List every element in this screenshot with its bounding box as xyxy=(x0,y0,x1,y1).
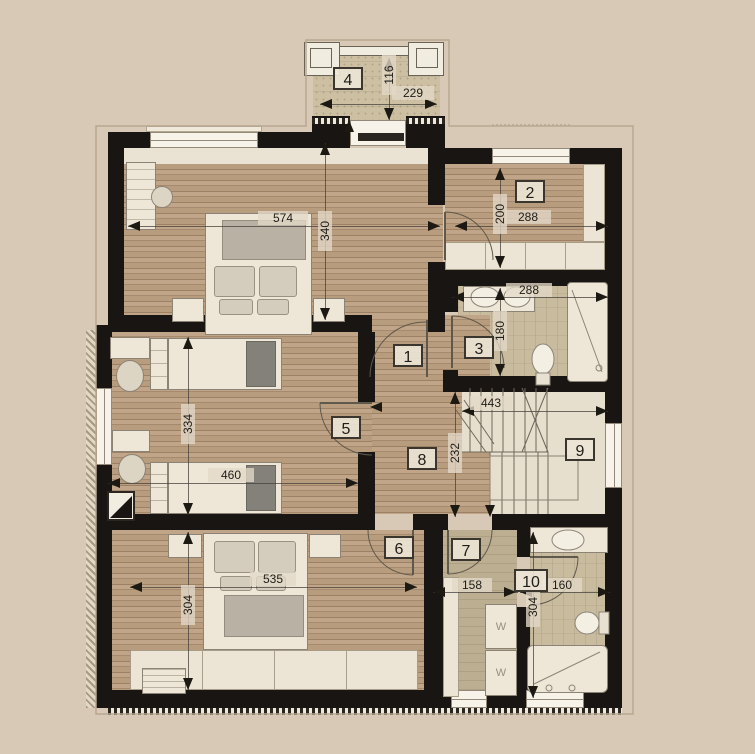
dim-200-arrow-bottom xyxy=(495,256,505,268)
dim-340-arrow-bottom xyxy=(320,308,330,320)
room2-vent-dots xyxy=(492,124,570,126)
bench-bedroom6 xyxy=(142,668,186,694)
dim-334-arrow-top xyxy=(183,337,193,349)
shelf-single-a xyxy=(150,338,168,390)
balcony-hatch-right xyxy=(406,118,445,124)
wall-left-upper xyxy=(108,140,124,332)
stair-direction-arrow xyxy=(485,505,495,517)
left-window xyxy=(96,388,112,465)
shelf-single-b xyxy=(150,462,168,514)
room2-wardrobe-band xyxy=(445,242,605,270)
dim-room2-width: 288 xyxy=(505,210,551,224)
dim-288b-line xyxy=(452,297,608,298)
room-label-9: 9 xyxy=(565,438,595,461)
bed-bottom-pillow-2 xyxy=(258,541,296,573)
dim-304R-arrow-top xyxy=(528,532,538,544)
bed-top-cushion-1 xyxy=(219,299,253,315)
bed-top-cushion-2 xyxy=(257,299,289,315)
dim-443-line xyxy=(462,411,608,412)
stairwell-floor-lower xyxy=(490,452,605,514)
washer-2-label: W xyxy=(496,667,506,679)
dim-460-arrow-right xyxy=(346,478,358,488)
dim-340-arrow-top xyxy=(320,143,330,155)
dim-160-arrow-right xyxy=(598,587,610,597)
room-label-5: 5 xyxy=(331,416,361,439)
dim-535-line xyxy=(130,587,417,588)
bedroom1-window xyxy=(150,132,258,148)
nightstand-top-left xyxy=(172,298,204,322)
dim-158-arrow-left xyxy=(433,587,445,597)
room2-window xyxy=(492,148,570,164)
dim-room5-depth: 334 xyxy=(181,404,195,444)
dim-304L-arrow-bottom xyxy=(183,678,193,690)
dim-288b-arrow-left xyxy=(452,292,464,302)
bedroom1-window-sill xyxy=(146,126,262,132)
dim-bedroom6-depth: 304 xyxy=(181,585,195,625)
washer-unit-1: W xyxy=(485,604,517,649)
dim-460-arrow-left xyxy=(108,478,120,488)
dim-bedroom1-depth: 340 xyxy=(318,211,332,251)
balcony-door-marker-arrow xyxy=(344,120,354,132)
room-label-2: 2 xyxy=(515,180,545,203)
dim-stairhall-width: 443 xyxy=(470,396,512,410)
bed-top-pillow-1 xyxy=(214,266,255,297)
dim-443-arrow-right xyxy=(596,406,608,416)
chair-room5-a xyxy=(116,360,144,392)
dim-460-line xyxy=(108,483,358,484)
dim-bath3-depth: 180 xyxy=(493,311,507,351)
room-label-10: 10 xyxy=(514,569,548,592)
bed-single-a-blanket xyxy=(246,341,276,387)
dim-288a-arrow-left xyxy=(455,221,467,231)
wall-mid-band-1 xyxy=(96,514,368,530)
nightstand-bottom-right xyxy=(309,534,341,558)
dim-room5-width: 460 xyxy=(208,468,254,482)
wall-left-lower xyxy=(96,465,112,708)
dim-room7-width: 158 xyxy=(452,578,492,592)
dim-304R-arrow-bottom xyxy=(528,686,538,698)
bath10-vanity xyxy=(530,527,608,553)
washer-unit-2: W xyxy=(485,650,517,696)
dim-229-arrow-left xyxy=(320,99,332,109)
chair-bedroom1 xyxy=(151,186,173,208)
wall-room5-right-a xyxy=(358,332,375,402)
dim-229-line xyxy=(320,104,437,105)
room-label-6: 6 xyxy=(384,536,414,559)
bed-bottom-pillow-1 xyxy=(214,541,255,573)
dim-hall-depth: 232 xyxy=(448,433,462,473)
dim-232-arrow-bottom xyxy=(450,505,460,517)
room-label-4: 4 xyxy=(333,67,363,90)
room5-door-marker-arrow xyxy=(370,402,382,412)
dim-116-arrow-bottom xyxy=(384,108,394,120)
left-exterior-hatch xyxy=(86,330,96,708)
dim-288a-line xyxy=(455,226,608,227)
dim-balcony-depth: 116 xyxy=(382,55,396,95)
dim-229-arrow-right xyxy=(425,99,437,109)
dim-574-arrow-right xyxy=(428,221,440,231)
dim-574-line xyxy=(128,226,440,227)
desk-room5-b xyxy=(112,430,150,452)
dim-bath3-width: 288 xyxy=(506,283,552,297)
balcony-corner-right-inner xyxy=(416,48,438,68)
bath10-tub xyxy=(527,645,608,693)
dim-535-arrow-left xyxy=(130,582,142,592)
bed-bottom-cushion-1 xyxy=(220,576,252,591)
dim-180-arrow-top xyxy=(495,288,505,300)
chair-room5-b xyxy=(118,454,146,484)
dim-bath10-width: 160 xyxy=(542,578,582,592)
wall-bedroom6-right xyxy=(424,514,443,708)
balcony-corner-left-inner xyxy=(310,48,332,68)
stair-window xyxy=(605,423,622,488)
room-label-3: 3 xyxy=(464,336,494,359)
dim-304L-arrow-top xyxy=(183,532,193,544)
bedroom1-window-strip xyxy=(124,148,430,164)
desk-room5-a xyxy=(110,337,150,359)
dim-574-arrow-left xyxy=(128,221,140,231)
washer-1-label: W xyxy=(496,621,506,633)
floor-plan: W W xyxy=(0,0,755,754)
dim-room2-depth: 200 xyxy=(493,194,507,234)
dim-180-arrow-bottom xyxy=(495,364,505,376)
dim-288a-arrow-right xyxy=(596,221,608,231)
dim-balcony-width: 229 xyxy=(392,86,434,100)
dim-200-arrow-top xyxy=(495,168,505,180)
bottom-exterior-hatch xyxy=(108,708,622,715)
dim-334-arrow-bottom xyxy=(183,503,193,515)
room7-closet-strip xyxy=(443,577,459,697)
dim-bedroom6-width: 535 xyxy=(250,572,296,586)
bed-top-pillow-2 xyxy=(259,266,297,297)
bed-bottom-blanket xyxy=(224,595,304,637)
room-label-7: 7 xyxy=(451,538,481,561)
dim-288b-arrow-right xyxy=(596,292,608,302)
room-label-8: 8 xyxy=(407,447,437,470)
dim-535-arrow-right xyxy=(405,582,417,592)
balcony-rail-band xyxy=(338,46,410,56)
dim-232-arrow-top xyxy=(450,392,460,404)
balcony-door-panel xyxy=(358,133,404,141)
wall-bedroom1-right-a xyxy=(428,148,445,205)
dim-bedroom1-width: 574 xyxy=(258,211,308,225)
room-label-1: 1 xyxy=(393,344,423,367)
